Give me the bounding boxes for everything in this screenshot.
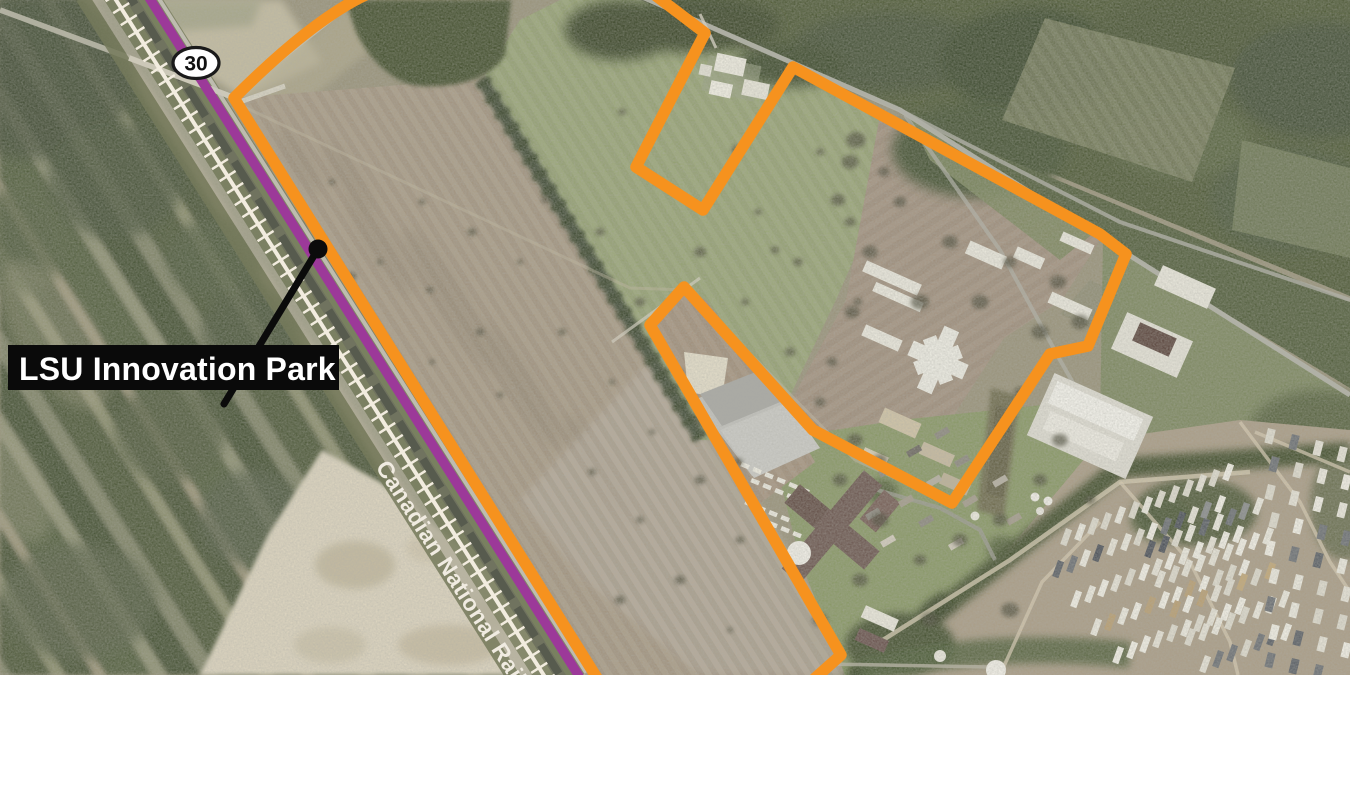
- svg-text:30: 30: [184, 53, 207, 76]
- svg-text:LSU Innovation Park: LSU Innovation Park: [19, 351, 336, 387]
